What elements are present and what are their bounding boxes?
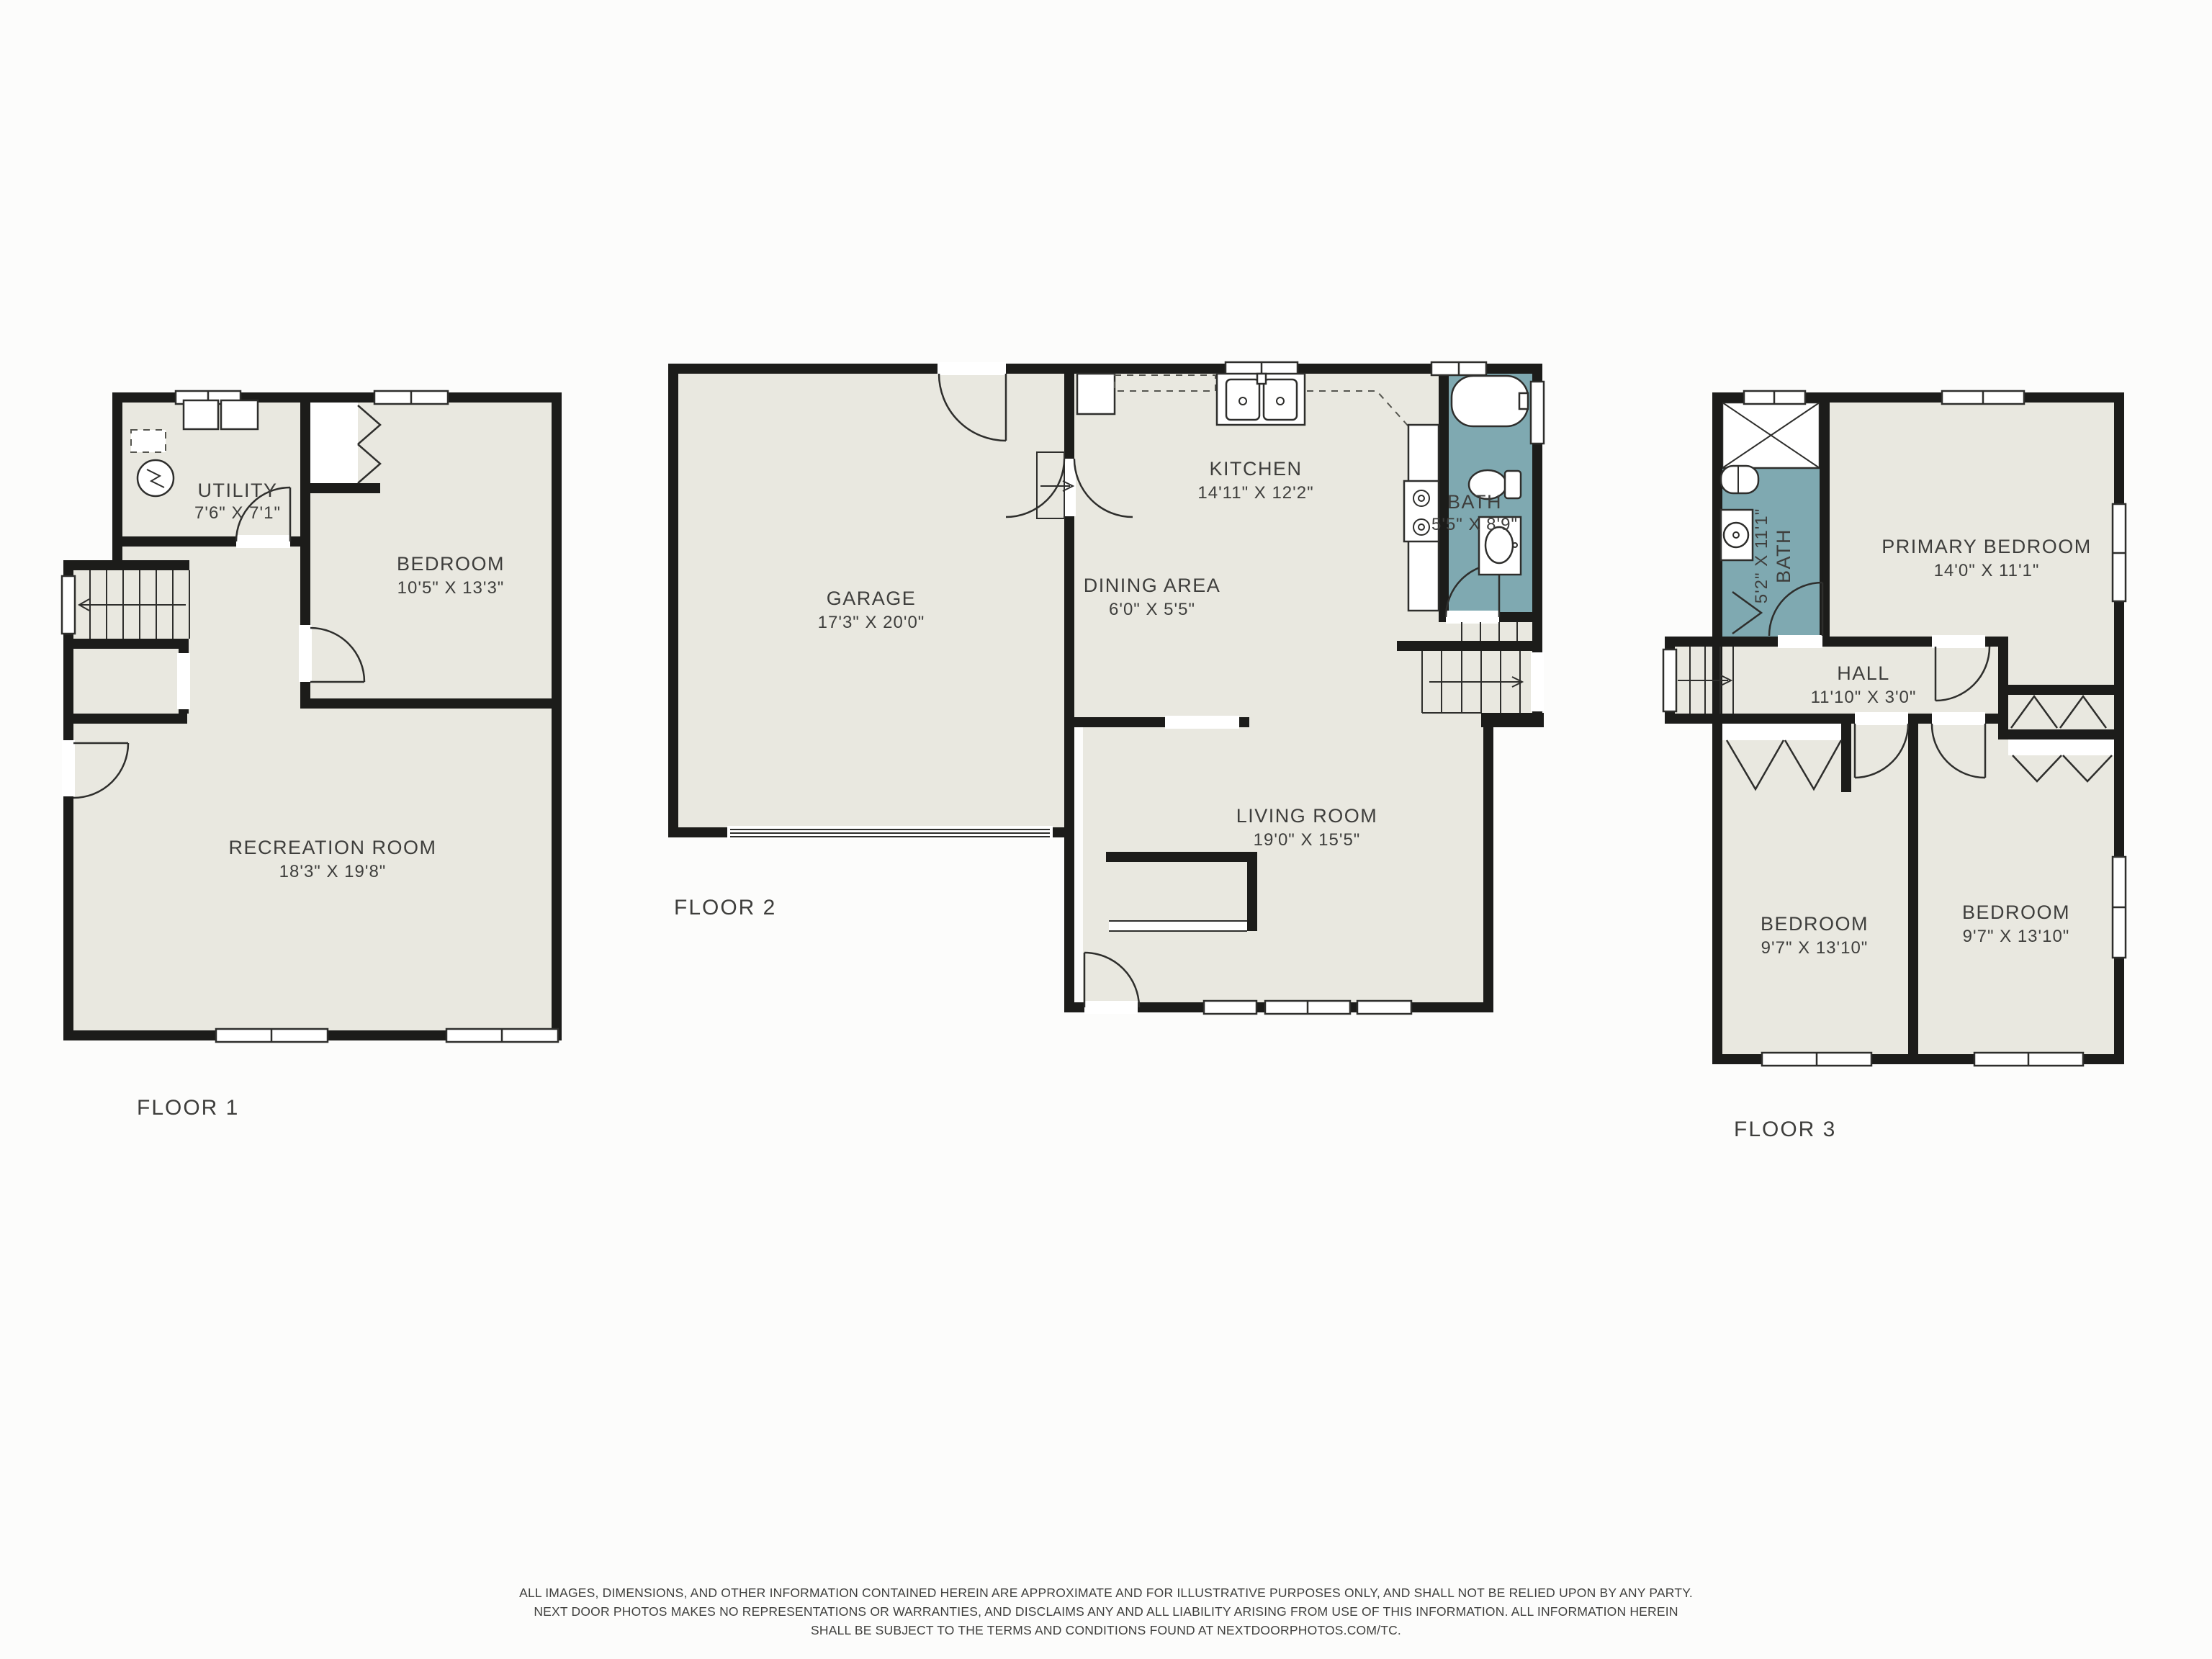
room-label-living: LIVING ROOM [1236,805,1378,827]
window [62,576,75,634]
window [1942,391,2024,404]
window [1531,382,1544,444]
room-dims-bedroom-left: 9'7" X 13'10" [1761,938,1869,958]
room-label-kitchen: KITCHEN [1209,458,1302,480]
disclaimer-line1: ALL IMAGES, DIMENSIONS, AND OTHER INFORM… [519,1586,1693,1600]
svg-text:BATH: BATH [1773,529,1794,583]
floor2-label: FLOOR 2 [674,896,776,920]
sink-icon [1226,379,1259,420]
window [446,1029,558,1042]
room-label-bedroom1: BEDROOM [397,553,505,575]
room-label-primary: PRIMARY BEDROOM [1881,536,2092,557]
window [1663,649,1676,711]
room-dims-dining: 6'0" X 5'5" [1109,600,1195,619]
window [1204,1001,1256,1014]
room-dims-kitchen: 14'11" X 12'2" [1197,483,1313,503]
window [2113,857,2126,958]
svg-text:5'2" X 11'1": 5'2" X 11'1" [1752,508,1771,604]
window [1974,1053,2083,1066]
room-dims-hall: 11'10" X 3'0" [1811,688,1917,707]
disclaimer-line2: NEXT DOOR PHOTOS MAKES NO REPRESENTATION… [534,1604,1678,1619]
room-label-bedroom-left: BEDROOM [1761,913,1869,935]
room-dims-garage: 17'3" X 20'0" [818,613,925,632]
floor3-label: FLOOR 3 [1734,1118,1836,1141]
shower-icon [1722,403,1820,468]
room-dims-recreation: 18'3" X 19'8" [279,862,387,881]
washer-icon [184,400,218,429]
dryer-icon [221,400,258,429]
window [1744,391,1805,404]
window [216,1029,328,1042]
bath-sink-icon [1721,510,1753,560]
window [2113,504,2126,601]
room-label-utility: UTILITY [197,480,277,501]
garage-door [727,826,1053,839]
fridge-icon [1077,374,1115,414]
floor1-label: FLOOR 1 [137,1096,239,1120]
water-heater-icon [131,430,166,452]
floor-plan-canvas: UTILITY 7'6" X 7'1" BEDROOM 10'5" X 13'3… [0,0,2212,1659]
room-dims-bath2: 5'5" X 8'9" [1431,515,1518,534]
disclaimer-line3: SHALL BE SUBJECT TO THE TERMS AND CONDIT… [811,1623,1401,1637]
room-label-dining: DINING AREA [1084,575,1221,596]
window [1265,1001,1350,1014]
disclaimer: ALL IMAGES, DIMENSIONS, AND OTHER INFORM… [519,1586,1693,1637]
room-label-hall: HALL [1837,662,1890,684]
room-dims-bedroom-right: 9'7" X 13'10" [1963,927,2070,946]
dining-living-opening [1165,716,1239,729]
floor1-plan: UTILITY 7'6" X 7'1" BEDROOM 10'5" X 13'3… [62,391,562,1120]
kitchen-counter-sink [1217,374,1305,425]
floor-plan-page: UTILITY 7'6" X 7'1" BEDROOM 10'5" X 13'3… [0,0,2212,1659]
floor3-plan: PRIMARY BEDROOM 14'0" X 11'1" 5'2" X 11'… [1663,391,2126,1141]
window [1357,1001,1411,1014]
toilet-icon [1721,466,1758,493]
electrical-panel-icon [138,460,174,496]
room-dims-utility: 7'6" X 7'1" [194,503,281,523]
room-label-bath2: BATH [1447,491,1502,513]
window [1762,1053,1871,1066]
room-dims-bedroom1: 10'5" X 13'3" [397,578,505,598]
room-dims-living: 19'0" X 15'5" [1254,830,1361,850]
window [374,391,448,404]
bathtub-icon [1452,376,1528,426]
nook-opening [177,653,190,709]
room-label-bedroom-right: BEDROOM [1962,902,2070,923]
floor2-fills [678,374,1535,1012]
room-label-recreation: RECREATION ROOM [228,837,436,858]
room-label-garage: GARAGE [827,588,917,609]
window [1431,362,1486,375]
room-dims-primary: 14'0" X 11'1" [1934,561,2040,580]
floor2-plan: GARAGE 17'3" X 20'0" KITCHEN 14'11" X 12… [668,362,1544,1014]
